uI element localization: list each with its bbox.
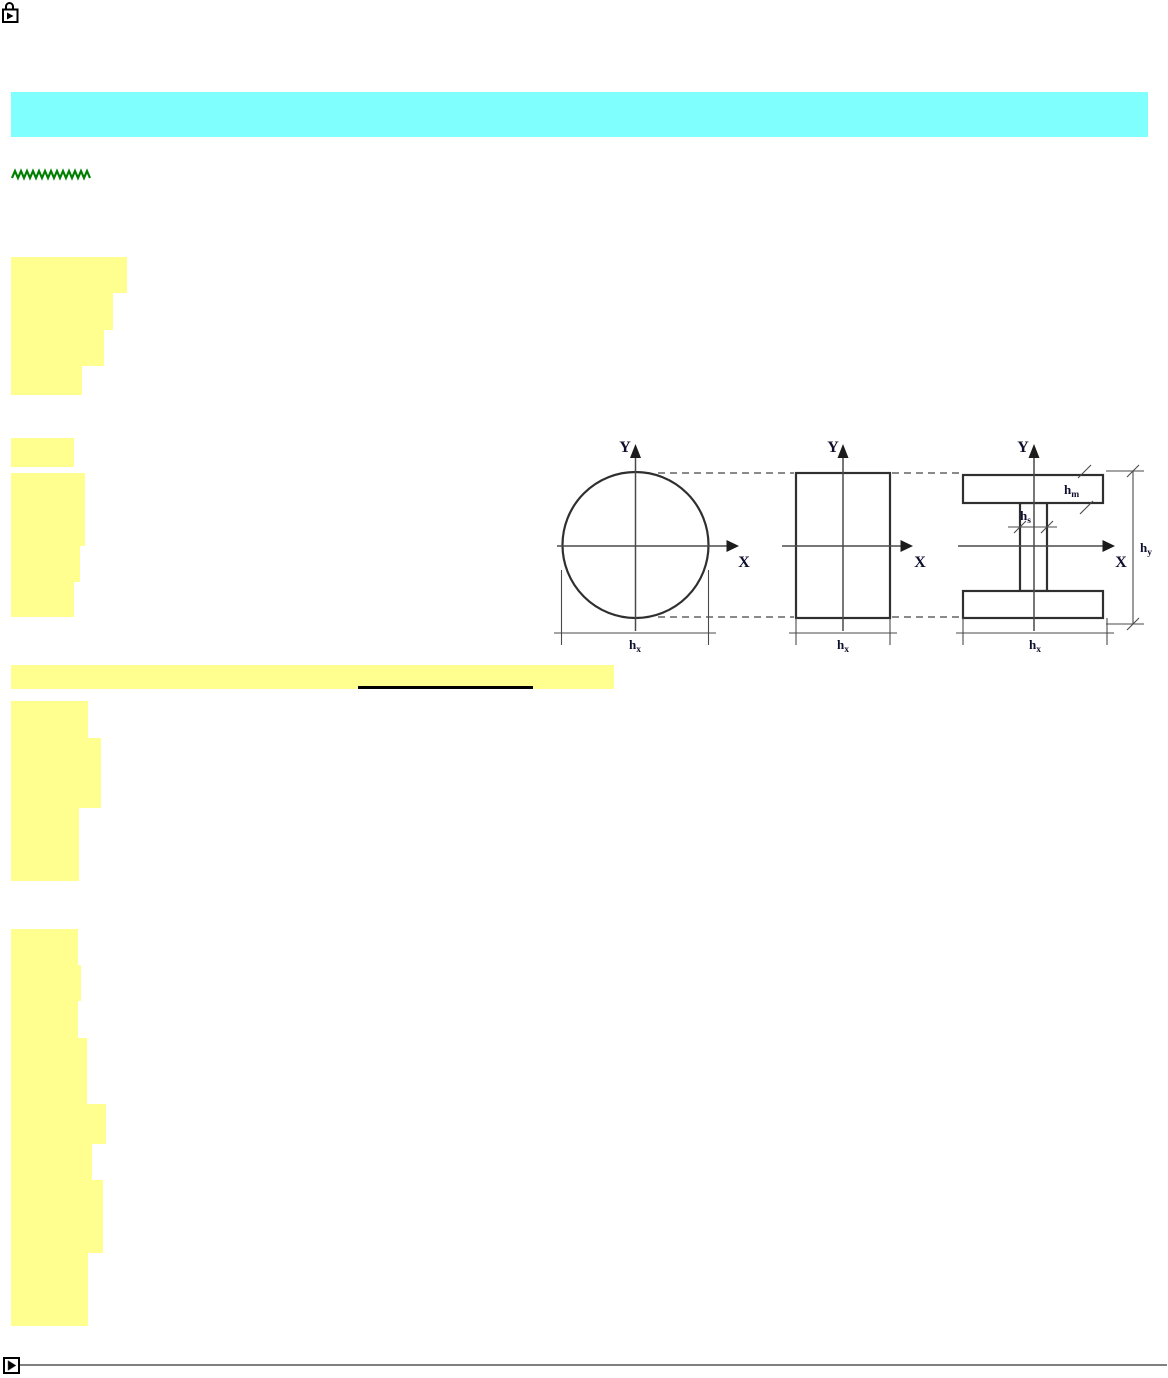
cyan-header-bar — [11, 92, 1148, 137]
y-axis-label: Y — [619, 439, 631, 456]
x-axis-label: X — [914, 554, 926, 571]
cross-sections-diagram: Y X hx Y X hx — [540, 430, 1168, 675]
redacted-text-block — [11, 1001, 78, 1038]
redacted-link-underline — [358, 686, 533, 689]
dim-label-hy: hy — [1140, 540, 1152, 558]
redacted-text-block — [11, 330, 104, 366]
x-axis-label: X — [738, 554, 750, 571]
dim-label-hx: hx — [629, 637, 641, 655]
redacted-text-block — [11, 582, 74, 617]
y-axis-label: Y — [827, 439, 839, 456]
redacted-text-block — [11, 366, 82, 395]
document-page: Y X hx Y X hx — [0, 0, 1168, 1378]
redacted-text-block — [11, 1180, 103, 1253]
redacted-text-block — [11, 701, 88, 738]
redacted-text-block — [11, 965, 81, 1001]
redacted-text-block — [11, 257, 127, 293]
locked-media-icon[interactable] — [2, 1, 19, 23]
circle-section: Y X hx — [554, 439, 750, 655]
dim-label-hx: hx — [837, 637, 849, 655]
redacted-text-block — [11, 1253, 88, 1326]
redacted-text-block — [11, 438, 74, 467]
x-axis-arrow-icon — [901, 540, 914, 552]
redacted-text-block — [11, 473, 85, 546]
rectangle-section: Y X hx — [782, 439, 926, 655]
footer-divider-line — [19, 1364, 1167, 1366]
y-axis-label: Y — [1017, 439, 1029, 456]
zigzag-line — [12, 171, 90, 178]
dim-label-hx: hx — [1029, 637, 1041, 655]
redacted-text-block — [11, 1144, 92, 1180]
redacted-text-block — [11, 1038, 87, 1104]
redacted-text-block — [11, 929, 78, 965]
ibeam-bottom-flange — [963, 591, 1103, 618]
ibeam-top-flange — [963, 475, 1103, 503]
zigzag-underline — [11, 168, 92, 181]
x-axis-arrow-icon — [1103, 540, 1116, 552]
ibeam-section: Y X hm hs hy hx — [956, 439, 1152, 655]
y-axis-arrow-icon — [630, 444, 641, 458]
redacted-text-block — [11, 293, 113, 330]
y-axis-arrow-icon — [838, 444, 849, 458]
x-axis-arrow-icon — [727, 540, 740, 552]
y-axis-arrow-icon — [1029, 444, 1040, 458]
redacted-text-block — [11, 1104, 106, 1144]
x-axis-label: X — [1115, 554, 1127, 571]
play-button-icon[interactable] — [3, 1357, 20, 1374]
redacted-text-block — [11, 808, 79, 881]
redacted-text-block — [11, 738, 101, 808]
redacted-text-block — [11, 546, 80, 582]
